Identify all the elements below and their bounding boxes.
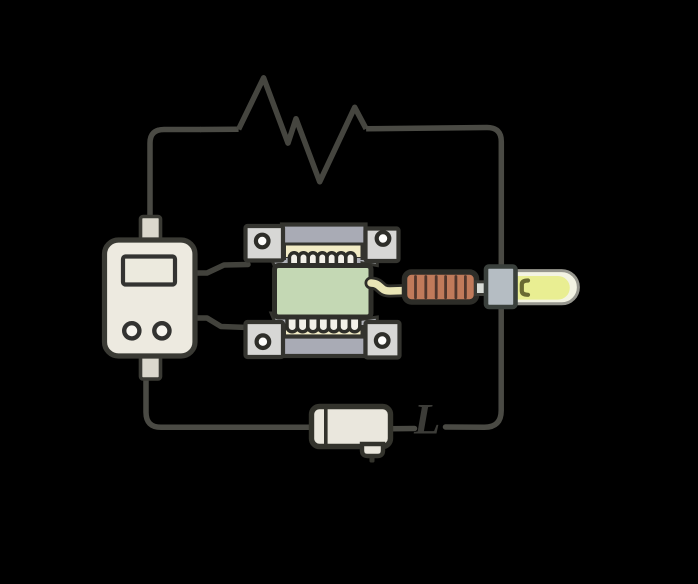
svg-text:L: L	[413, 397, 440, 444]
